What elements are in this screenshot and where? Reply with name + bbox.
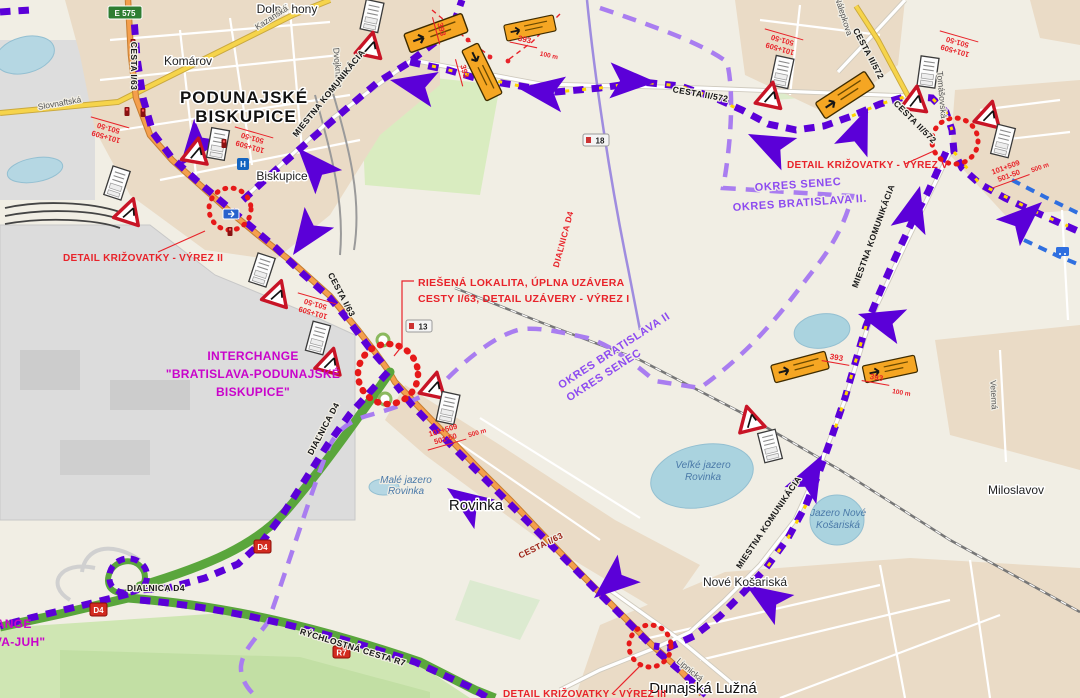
annotation-detail-vyrez-iii: DETAIL KRIŽOVATKY - VÝREZ III (503, 687, 666, 698)
lake-nove-kosariska-line2: Košariská (816, 520, 860, 531)
info-sign-icon (223, 209, 239, 219)
shield-e575: E 575 (108, 6, 142, 19)
traffic-light-icon (228, 227, 233, 236)
svg-text:D4: D4 (257, 543, 268, 552)
place-miloslavov: Miloslavov (988, 483, 1044, 497)
badge-18: 18 (583, 134, 609, 146)
svg-text:H: H (240, 160, 246, 169)
industrial-building (20, 350, 80, 390)
place-podunajske-line2: BISKUPICE (195, 107, 297, 126)
interchange-pb-line3: BISKUPICE" (216, 385, 290, 399)
industrial-building (60, 440, 150, 475)
lake-velke-jazero-line2: Rovinka (685, 472, 722, 483)
traffic-light-icon (141, 108, 146, 117)
street-veterna: Veterná (988, 380, 1000, 410)
annotation-detail-vyrez-v: DETAIL KRIŽOVATKY - VÝREZ V (787, 158, 948, 171)
shield-d4: D4 (90, 603, 107, 616)
road-label-cesta-i63: CESTA I/63 (129, 42, 139, 90)
badge-13: 13 (406, 320, 432, 332)
lake-nove-kosariska-line1: Jazero Nové (809, 508, 867, 519)
place-biskupice: Biskupice (256, 169, 308, 183)
place-komarov: Komárov (164, 54, 212, 68)
map-svg: H E 575 18 13 D4 D4 R7 101+509 501-50 10… (0, 0, 1080, 698)
svg-text:18: 18 (596, 137, 605, 146)
bus-icon (1056, 247, 1069, 256)
svg-text:E 575: E 575 (115, 9, 136, 18)
place-podunajske-line1: PODUNAJSKÉ (180, 88, 308, 107)
traffic-light-icon (125, 107, 130, 116)
annotation-riesena-line1: RIEŠENÁ LOKALITA, ÚPLNA UZÁVERA (418, 276, 625, 289)
hospital-icon: H (237, 158, 249, 170)
svg-text:13: 13 (419, 323, 428, 332)
interchange-juh-line2: "BRATISLAVA-JUH" (0, 635, 45, 649)
road-label-dialnica-d4: DIAĽNICA D4 (127, 583, 185, 593)
shield-d4: D4 (254, 540, 271, 553)
industrial-building (110, 380, 190, 410)
svg-text:D4: D4 (93, 606, 104, 615)
interchange-pb-line1: INTERCHANGE (207, 349, 298, 363)
lake-velke-jazero-line1: Veľké jazero (675, 460, 731, 471)
interchange-pb-line2: "BRATISLAVA-PODUNAJSKÉ (166, 366, 340, 381)
interchange-juh-line1: INTERCHANGE (0, 617, 32, 631)
place-nove-kosariska: Nové Košariská (703, 575, 787, 589)
traffic-light-icon (222, 139, 227, 148)
place-rovinka: Rovinka (449, 497, 504, 514)
lake-male-jazero-line1: Malé jazero (380, 475, 432, 486)
annotation-detail-vyrez-ii: DETAIL KRIŽOVATKY - VÝREZ II (63, 251, 223, 264)
detour-map-canvas[interactable]: H E 575 18 13 D4 D4 R7 101+509 501-50 10… (0, 0, 1080, 698)
annotation-riesena-line2: CESTY I/63, DETAIL UZÁVERY - VÝREZ I (418, 292, 630, 305)
lake-male-jazero-line2: Rovinka (388, 486, 425, 497)
